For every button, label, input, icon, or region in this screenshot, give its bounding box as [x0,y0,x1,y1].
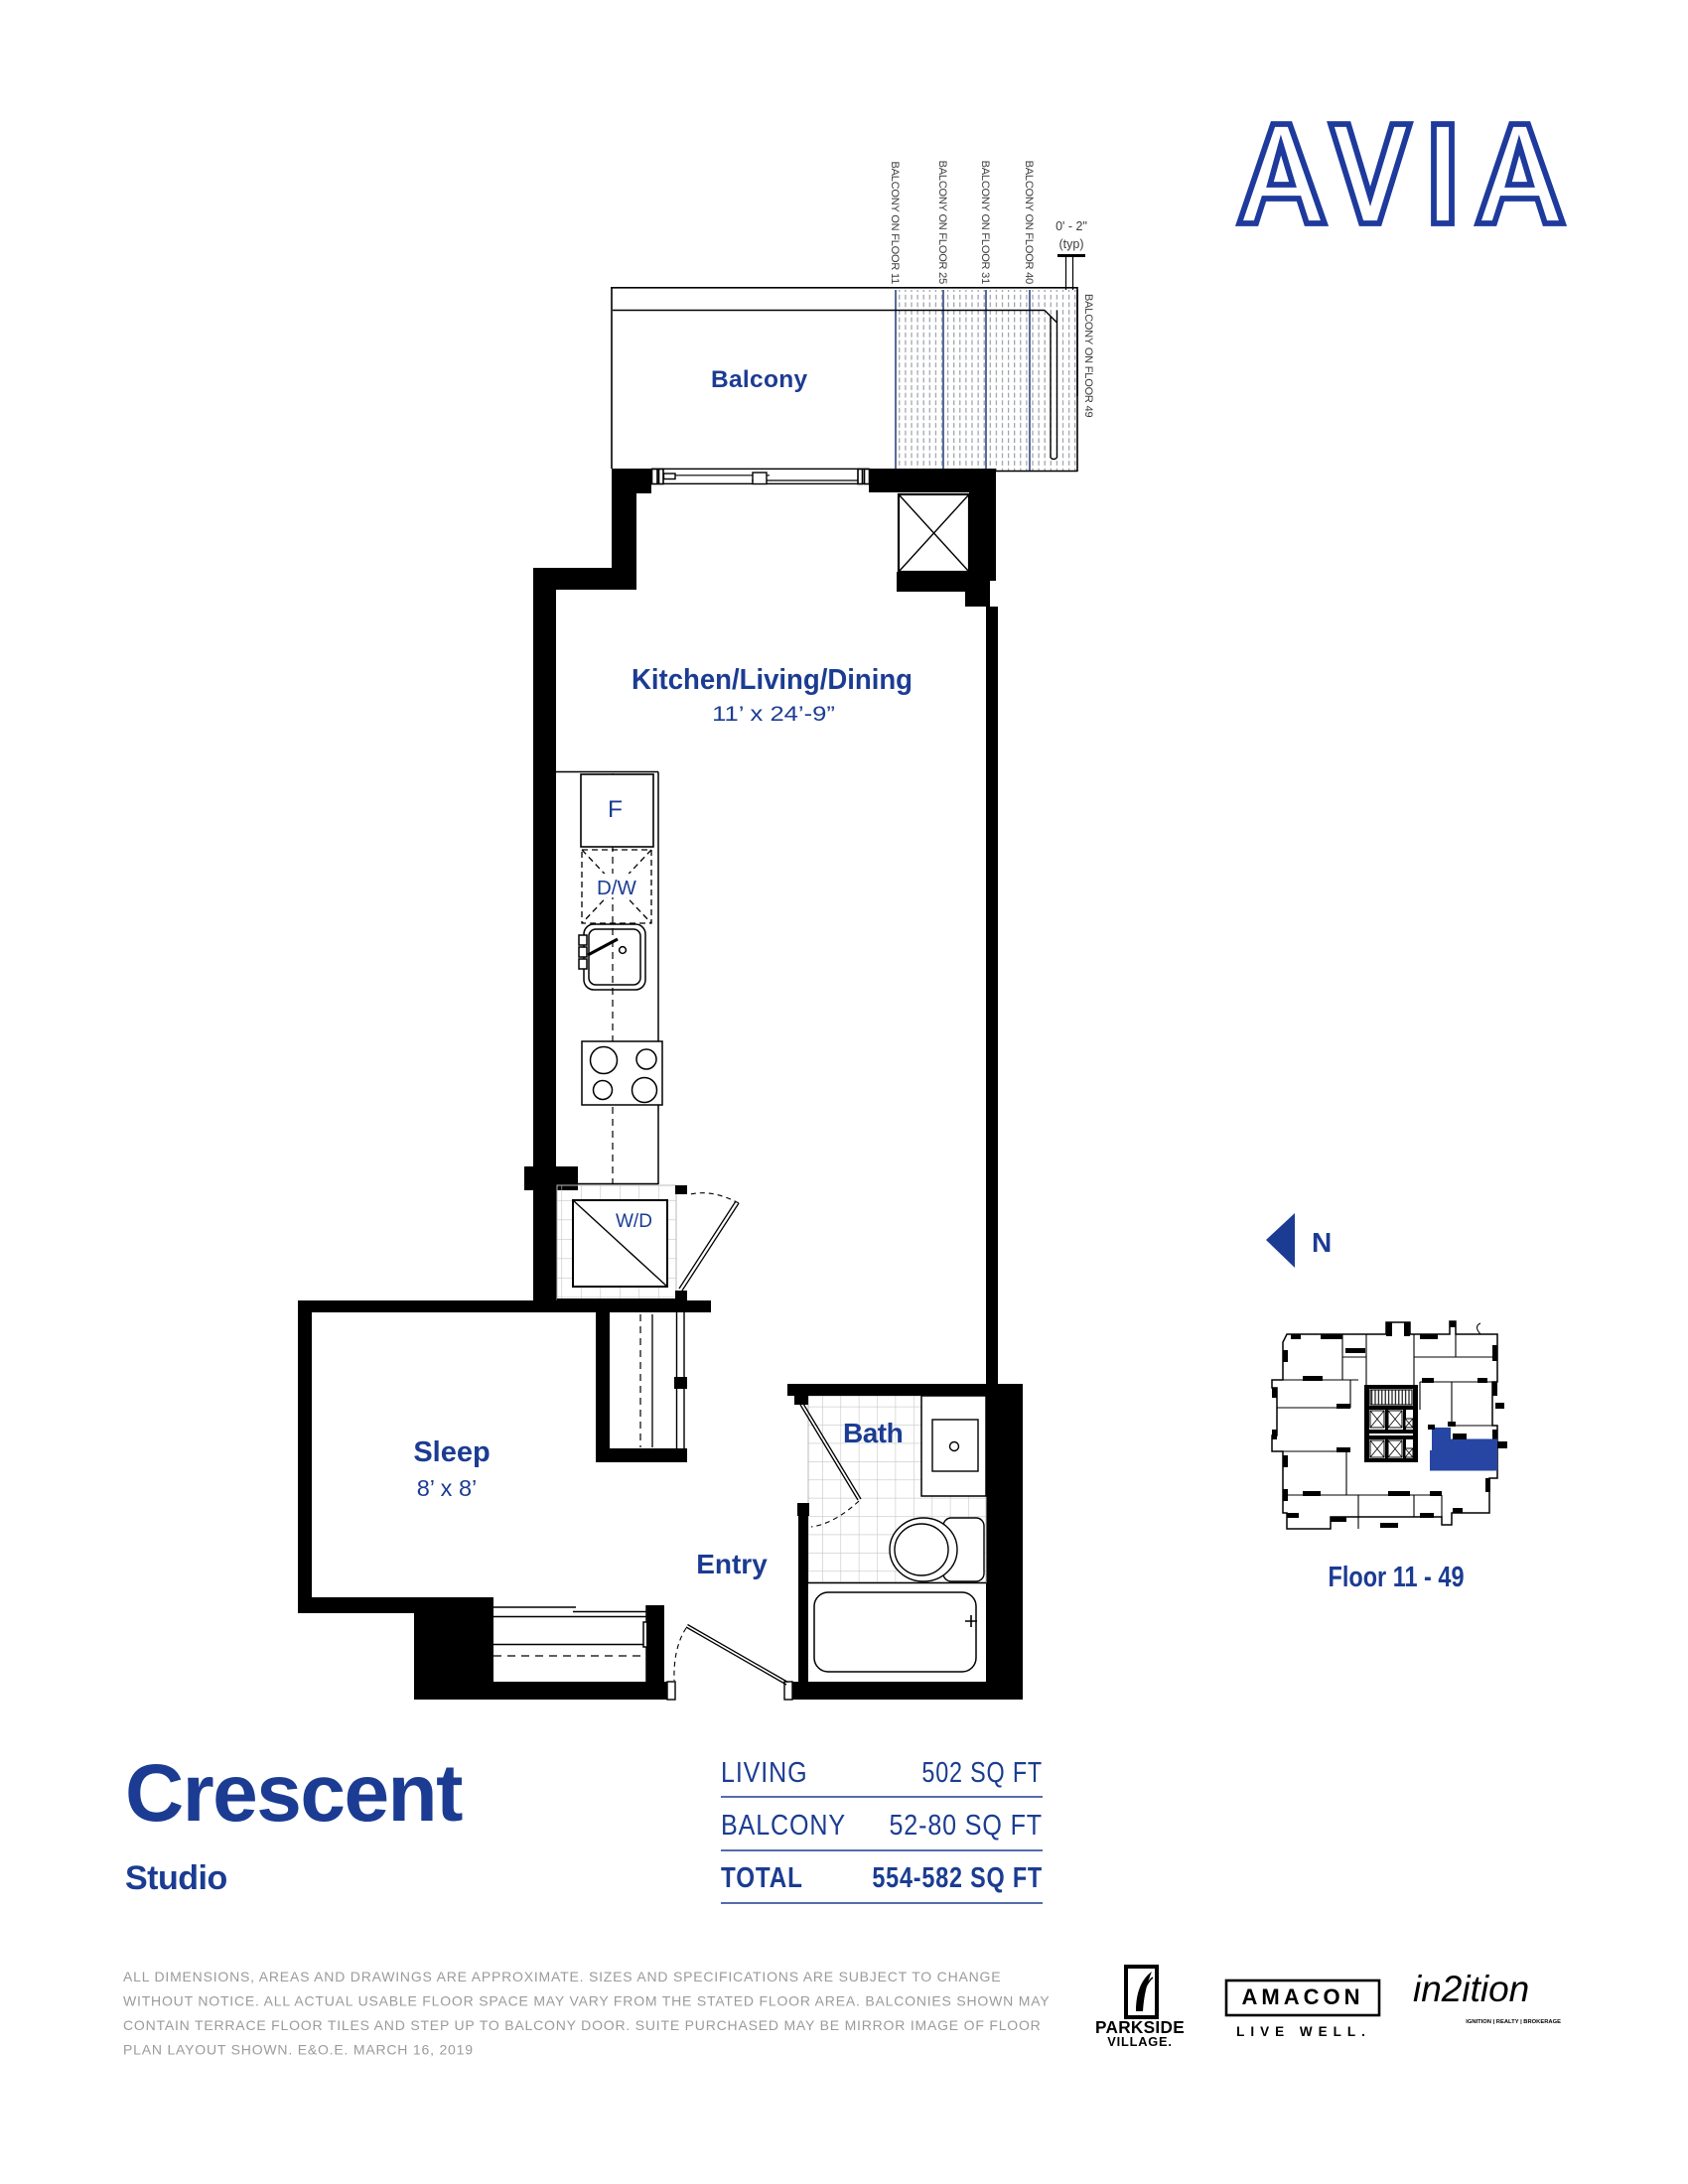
svg-text:11’ x 24’-9”: 11’ x 24’-9” [712,703,835,727]
svg-text:8’ x 8’: 8’ x 8’ [417,1475,478,1501]
svg-text:Bath: Bath [843,1418,903,1448]
svg-text:VILLAGE.: VILLAGE. [1107,2034,1172,2049]
svg-text:LIVE WELL.: LIVE WELL. [1236,2024,1371,2039]
svg-text:LIVING: LIVING [721,1757,807,1789]
svg-text:Entry: Entry [696,1549,768,1579]
svg-text:Crescent: Crescent [125,1748,463,1839]
svg-text:D/W: D/W [597,877,637,899]
svg-text:BALCONY ON FLOOR 11: BALCONY ON FLOOR 11 [889,161,901,284]
svg-text:WITHOUT NOTICE. ALL ACTUAL USA: WITHOUT NOTICE. ALL ACTUAL USABLE FLOOR … [123,1993,1050,2009]
svg-text:F: F [608,796,623,823]
svg-text:W/D: W/D [616,1211,652,1232]
svg-text:Sleep: Sleep [413,1436,490,1468]
svg-text:BALCONY ON FLOOR 31: BALCONY ON FLOOR 31 [979,161,991,284]
svg-text:Kitchen/Living/Dining: Kitchen/Living/Dining [632,662,913,695]
svg-text:(typ): (typ) [1059,237,1084,251]
svg-text:IGNITION | REALTY | BROKERAGE: IGNITION | REALTY | BROKERAGE [1466,2019,1561,2025]
svg-text:52-80 SQ FT: 52-80 SQ FT [889,1810,1043,1842]
svg-text:BALCONY ON FLOOR 25: BALCONY ON FLOOR 25 [936,161,948,284]
svg-text:0' - 2": 0' - 2" [1055,219,1087,233]
svg-text:in2ition: in2ition [1413,1969,1529,2009]
svg-text:Balcony: Balcony [711,366,807,393]
svg-text:TOTAL: TOTAL [721,1861,803,1893]
svg-text:BALCONY ON FLOOR 49: BALCONY ON FLOOR 49 [1082,294,1094,417]
svg-text:Floor 11 - 49: Floor 11 - 49 [1328,1561,1464,1593]
svg-text:Studio: Studio [125,1859,227,1897]
svg-text:ALL DIMENSIONS, AREAS AND DRAW: ALL DIMENSIONS, AREAS AND DRAWINGS ARE A… [123,1969,1001,1984]
svg-text:BALCONY: BALCONY [721,1810,846,1842]
svg-text:AMACON: AMACON [1242,1984,1364,2009]
svg-text:N: N [1312,1227,1332,1258]
svg-text:502 SQ FT: 502 SQ FT [921,1756,1043,1789]
svg-text:554-582 SQ FT: 554-582 SQ FT [872,1861,1043,1894]
svg-text:BALCONY ON FLOOR 40: BALCONY ON FLOOR 40 [1023,161,1035,284]
svg-text:CONTAIN TERRACE FLOOR TILES AN: CONTAIN TERRACE FLOOR TILES AND STEP UP … [123,2017,1042,2033]
svg-text:PLAN LAYOUT SHOWN. E&O.E. MARC: PLAN LAYOUT SHOWN. E&O.E. MARCH 16, 2019 [123,2042,474,2058]
